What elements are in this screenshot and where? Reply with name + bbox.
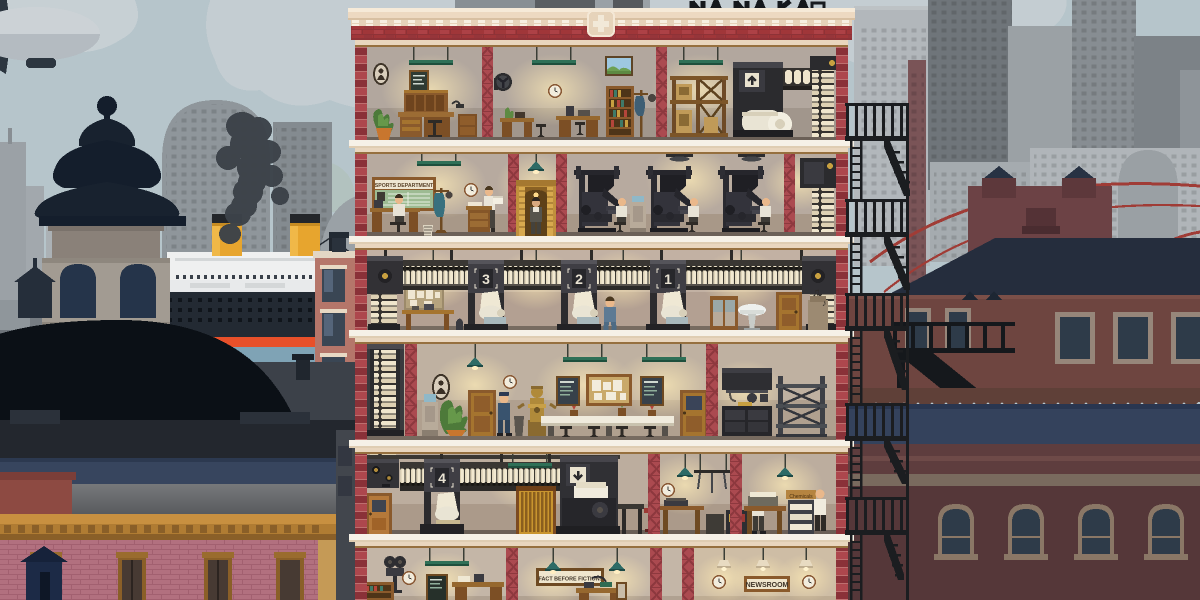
svg-text:♫: ♫ xyxy=(812,287,820,299)
svg-text:4: 4 xyxy=(438,470,446,486)
svg-text:2: 2 xyxy=(575,271,583,287)
svg-text:NEWSROOM: NEWSROOM xyxy=(746,582,789,589)
svg-text:SPORTS DEPARTMENT: SPORTS DEPARTMENT xyxy=(375,183,434,189)
svg-text:Chemicals: Chemicals xyxy=(789,494,813,500)
svg-text:3: 3 xyxy=(482,271,490,287)
svg-text:1: 1 xyxy=(664,271,672,287)
svg-text:♪: ♪ xyxy=(822,298,827,308)
